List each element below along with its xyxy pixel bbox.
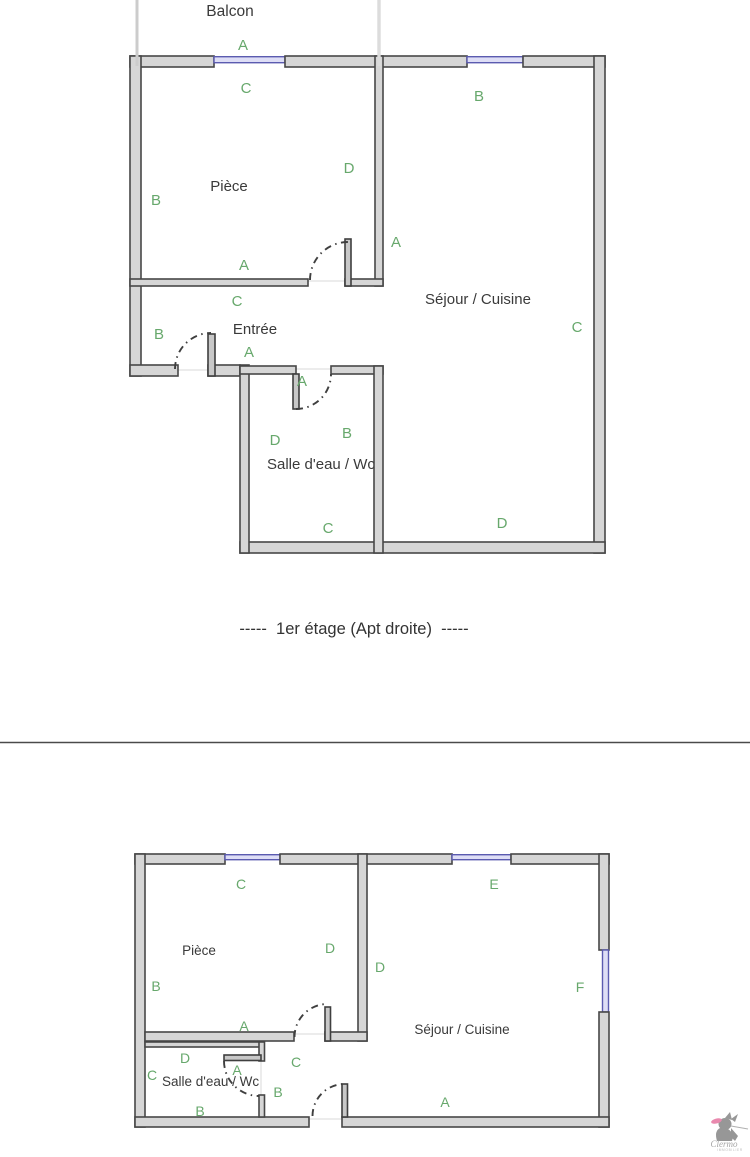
svg-text:A: A: [391, 234, 401, 251]
svg-text:C: C: [232, 293, 243, 310]
svg-text:Entrée: Entrée: [233, 321, 277, 338]
svg-text:D: D: [497, 515, 508, 532]
svg-text:D: D: [344, 160, 355, 177]
svg-text:B: B: [474, 88, 484, 105]
svg-text:C: C: [147, 1067, 157, 1083]
svg-text:A: A: [244, 344, 254, 361]
svg-text:A: A: [239, 1018, 249, 1034]
svg-text:Pièce: Pièce: [210, 178, 248, 195]
svg-text:Salle d'eau / Wc: Salle d'eau / Wc: [162, 1074, 259, 1089]
svg-text:B: B: [195, 1103, 204, 1119]
svg-text:D: D: [180, 1050, 190, 1066]
svg-text:B: B: [273, 1084, 282, 1100]
svg-text:E: E: [489, 876, 498, 892]
svg-text:Séjour / Cuisine: Séjour / Cuisine: [414, 1022, 509, 1037]
svg-text:A: A: [440, 1094, 450, 1110]
svg-text:Pièce: Pièce: [182, 943, 216, 958]
svg-text:A: A: [238, 37, 248, 54]
svg-text:C: C: [323, 520, 334, 537]
svg-text:Salle d'eau / Wc: Salle d'eau / Wc: [267, 456, 375, 473]
svg-text:C: C: [572, 319, 583, 336]
svg-text:Balcon: Balcon: [206, 3, 253, 20]
svg-text:IMMOBILIER: IMMOBILIER: [717, 1148, 743, 1152]
svg-text:D: D: [325, 940, 335, 956]
svg-text:----- 1er étage (Apt droite): ----- 1er étage (Apt droite) -----: [239, 620, 468, 638]
svg-text:B: B: [151, 978, 160, 994]
svg-text:A: A: [297, 373, 307, 390]
svg-text:A: A: [239, 257, 249, 274]
svg-text:C: C: [291, 1054, 301, 1070]
svg-text:Séjour / Cuisine: Séjour / Cuisine: [425, 291, 531, 308]
svg-text:B: B: [151, 192, 161, 209]
svg-text:F: F: [576, 979, 585, 995]
svg-text:D: D: [270, 432, 281, 449]
svg-text:B: B: [342, 425, 352, 442]
svg-text:B: B: [154, 326, 164, 343]
svg-text:C: C: [236, 876, 246, 892]
svg-text:D: D: [375, 959, 385, 975]
svg-text:C: C: [241, 80, 252, 97]
svg-text:A: A: [232, 1062, 242, 1078]
